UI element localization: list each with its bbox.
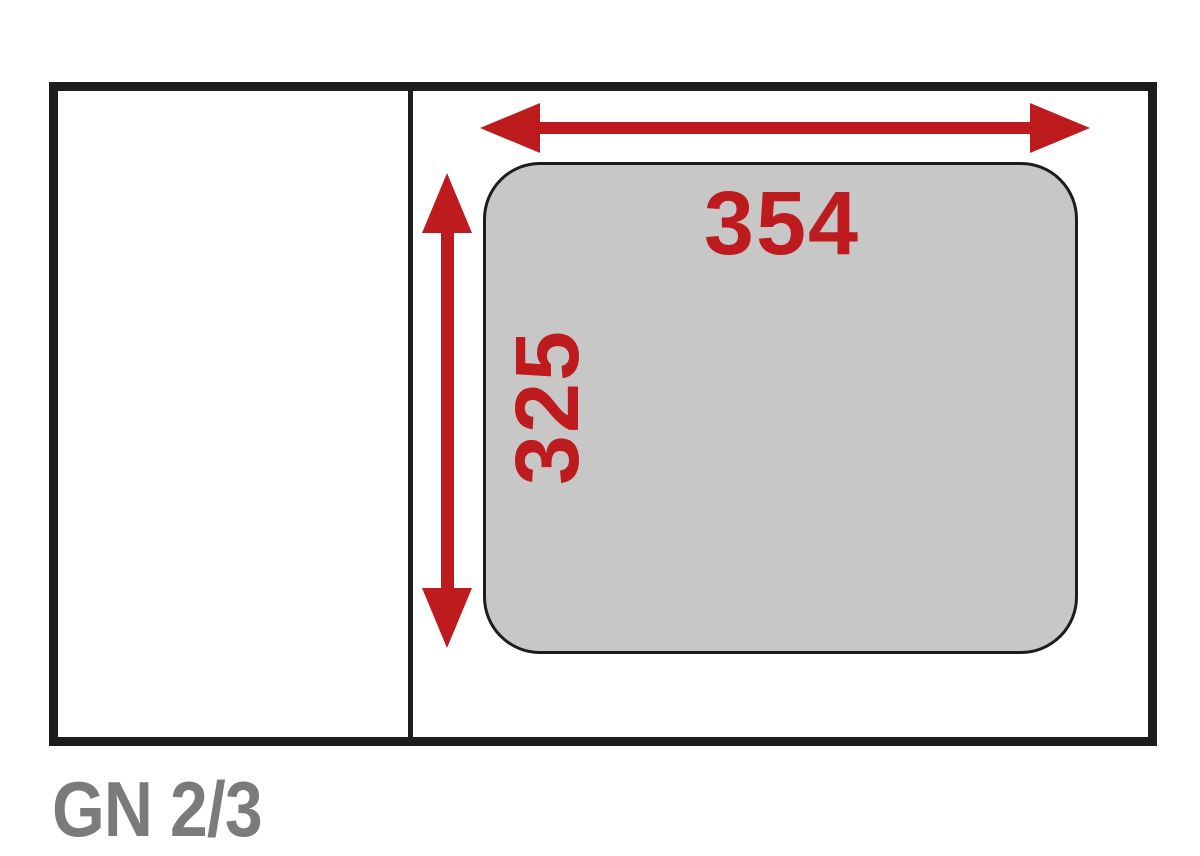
width-dimension-label: 354 xyxy=(704,179,860,269)
gn-pan-dimension-diagram: 354 325 GN 2/3 xyxy=(0,0,1200,856)
gn-frame-divider-line xyxy=(408,91,413,737)
height-dimension-label: 325 xyxy=(503,329,593,485)
size-caption: GN 2/3 xyxy=(52,770,262,848)
